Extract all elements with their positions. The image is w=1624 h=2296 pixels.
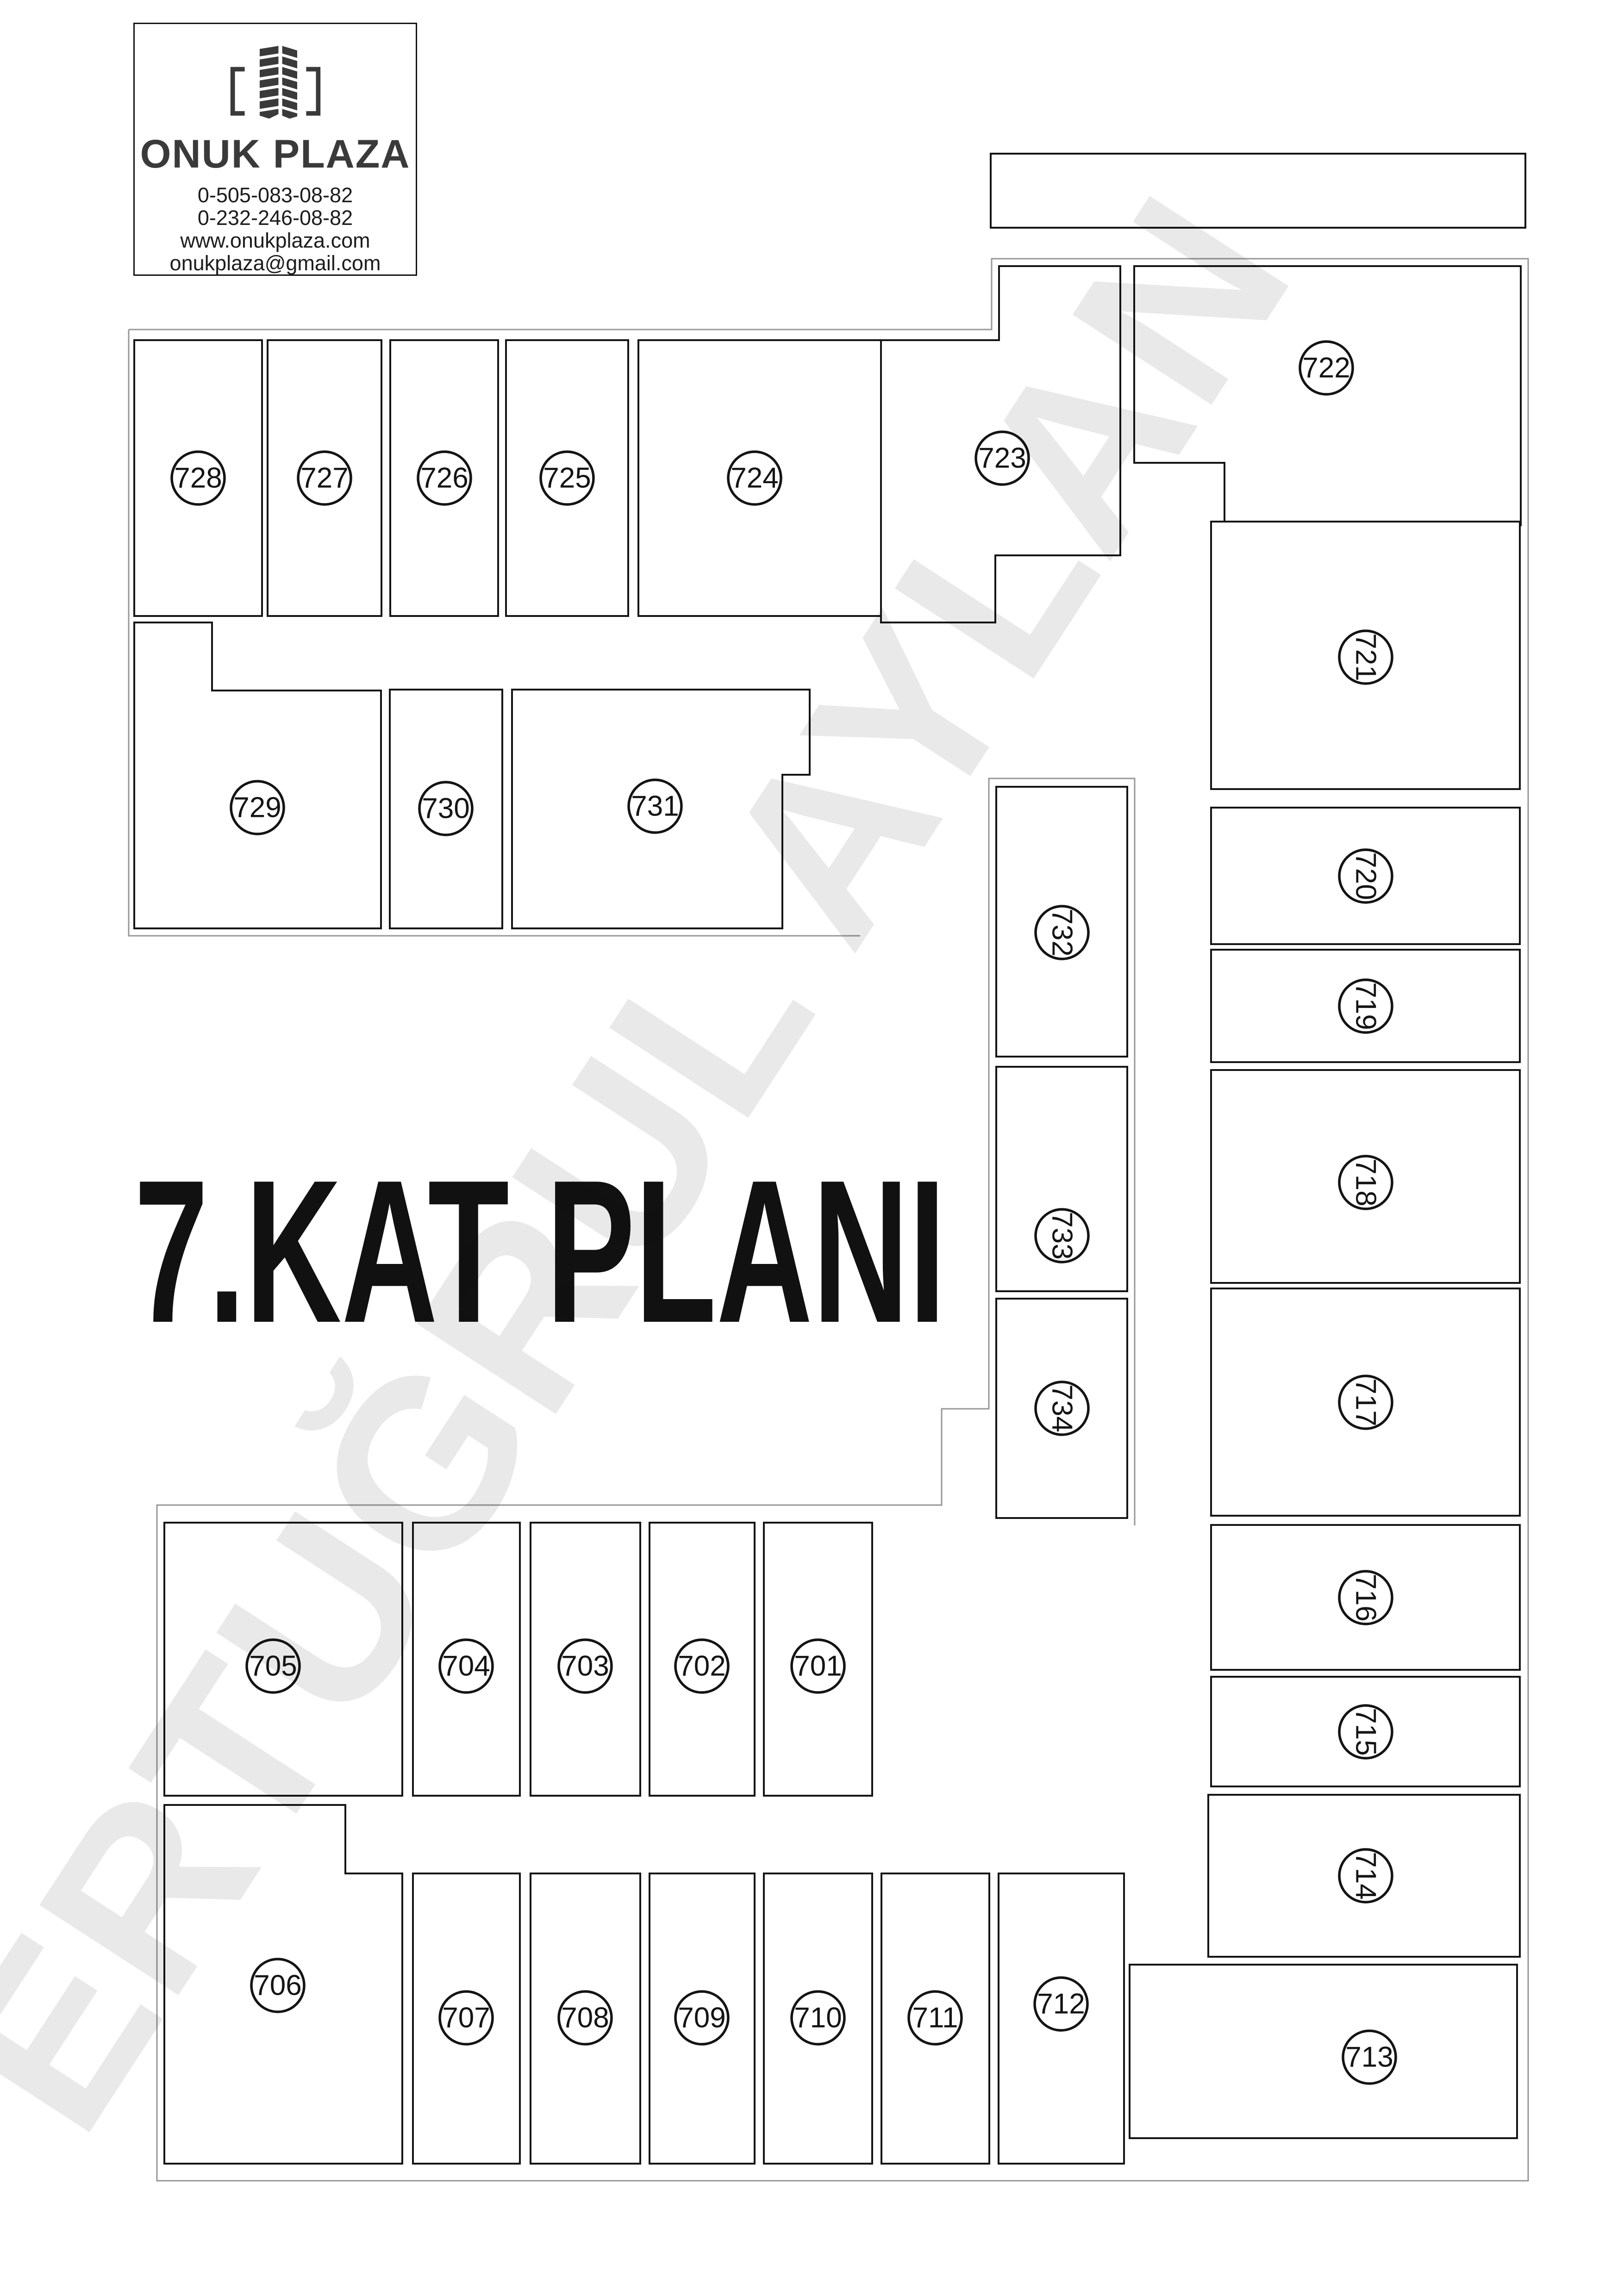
room-711-number: 711 bbox=[912, 2002, 958, 2034]
logo-card: ONUK PLAZA 0-505-083-08-82 0-232-246-08-… bbox=[133, 23, 417, 276]
floor-plan-canvas: 7287277267257247237227217207197187177167… bbox=[0, 0, 1624, 2296]
room-719-number: 719 bbox=[1350, 982, 1382, 1030]
room-713-number: 713 bbox=[1345, 2041, 1393, 2073]
floor-plan-page: 7287277267257247237227217207197187177167… bbox=[0, 0, 1624, 2296]
room-710-number: 710 bbox=[794, 2002, 842, 2034]
top-annex-rectangle bbox=[991, 154, 1525, 228]
room-718-number: 718 bbox=[1350, 1158, 1382, 1206]
room-721-number: 721 bbox=[1350, 633, 1382, 681]
room-708-number: 708 bbox=[561, 2002, 609, 2034]
room-734-number: 734 bbox=[1046, 1384, 1078, 1432]
room-712-number: 712 bbox=[1037, 1988, 1085, 2020]
logo-contact-block: 0-505-083-08-82 0-232-246-08-82 www.onuk… bbox=[170, 184, 381, 274]
room-720-number: 720 bbox=[1350, 852, 1382, 900]
room-701-number: 701 bbox=[794, 1650, 842, 1682]
room-713 bbox=[1130, 1965, 1517, 2138]
room-729-number: 729 bbox=[233, 792, 281, 824]
room-730-number: 730 bbox=[422, 793, 469, 825]
room-715-number: 715 bbox=[1350, 1708, 1382, 1755]
room-729 bbox=[134, 622, 381, 928]
room-728-number: 728 bbox=[174, 462, 222, 494]
room-714-number: 714 bbox=[1350, 1852, 1382, 1899]
room-733-number: 733 bbox=[1046, 1212, 1078, 1259]
logo-email: onukplaza@gmail.com bbox=[170, 252, 381, 274]
room-706-number: 706 bbox=[254, 1970, 301, 2002]
room-725-number: 725 bbox=[543, 462, 591, 494]
logo-website: www.onukplaza.com bbox=[170, 229, 381, 252]
room-703-number: 703 bbox=[561, 1650, 609, 1682]
logo-phone-1: 0-505-083-08-82 bbox=[170, 184, 381, 206]
room-724-number: 724 bbox=[731, 462, 778, 494]
room-707-number: 707 bbox=[442, 2002, 490, 2034]
room-717-number: 717 bbox=[1350, 1378, 1382, 1426]
room-727-number: 727 bbox=[300, 462, 348, 494]
building-icon bbox=[215, 44, 336, 119]
logo-phone-2: 0-232-246-08-82 bbox=[170, 206, 381, 229]
room-722-number: 722 bbox=[1302, 352, 1350, 384]
logo-name: ONUK PLAZA bbox=[140, 131, 411, 177]
room-702-number: 702 bbox=[678, 1650, 725, 1682]
room-709-number: 709 bbox=[678, 2002, 725, 2034]
room-732-number: 732 bbox=[1046, 908, 1078, 956]
room-726-number: 726 bbox=[420, 462, 468, 494]
room-731-number: 731 bbox=[631, 790, 679, 822]
room-716-number: 716 bbox=[1350, 1574, 1382, 1621]
